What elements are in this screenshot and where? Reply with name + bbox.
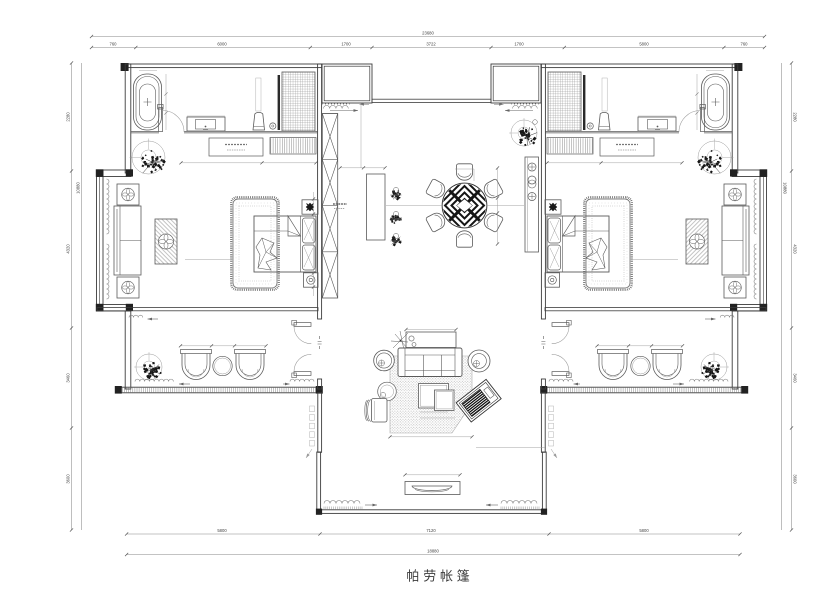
svg-text:7120: 7120	[426, 528, 436, 533]
svg-text:5800: 5800	[217, 528, 227, 533]
svg-text:10880: 10880	[76, 182, 81, 194]
svg-text:6000: 6000	[217, 42, 227, 47]
svg-text:5800: 5800	[639, 528, 649, 533]
svg-text:帕劳帐篷: 帕劳帐篷	[406, 569, 473, 584]
svg-text:760: 760	[741, 42, 749, 47]
svg-text:3722: 3722	[426, 42, 436, 47]
svg-text:760: 760	[110, 42, 118, 47]
svg-text:2280: 2280	[793, 112, 798, 122]
svg-text:2280: 2280	[66, 112, 71, 122]
svg-text:3460: 3460	[66, 373, 71, 383]
svg-text:5800: 5800	[639, 42, 649, 47]
svg-text:3600: 3600	[793, 474, 798, 484]
svg-text:23680: 23680	[422, 31, 434, 36]
svg-text:3600: 3600	[66, 474, 71, 484]
svg-text:4320: 4320	[66, 244, 71, 254]
svg-text:1700: 1700	[514, 42, 524, 47]
svg-text:10880: 10880	[783, 182, 788, 194]
svg-text:3460: 3460	[793, 373, 798, 383]
svg-text:18880: 18880	[427, 549, 439, 554]
svg-text:1700: 1700	[341, 42, 351, 47]
svg-text:4320: 4320	[793, 244, 798, 254]
